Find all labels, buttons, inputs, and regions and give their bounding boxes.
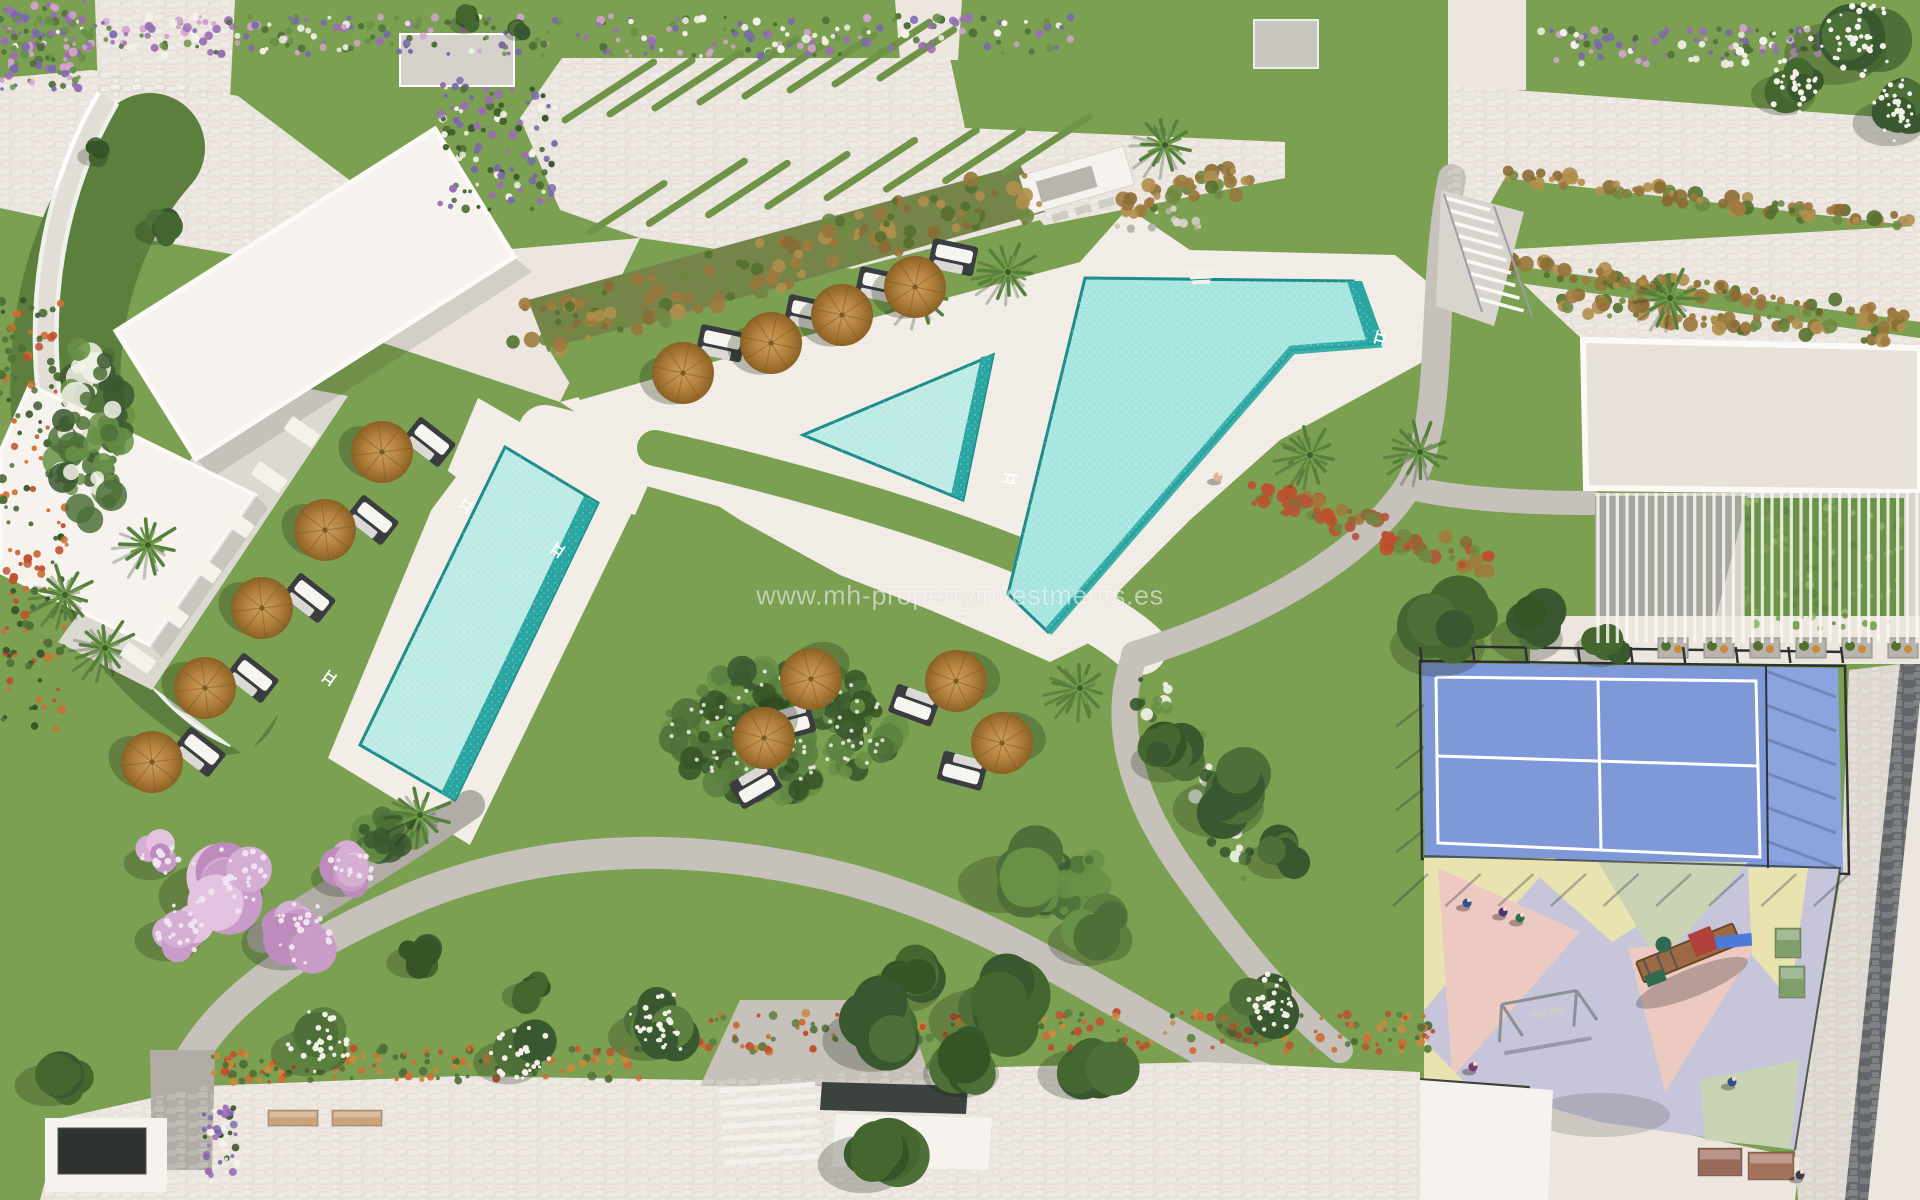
watermark: www.mh-propertyinvestments.es: [756, 581, 1164, 612]
padel-court-side-zone: [1766, 667, 1842, 872]
utility-box-topcenter: [1254, 20, 1318, 68]
bench-planter: [1779, 966, 1805, 998]
bench-planter: [1775, 928, 1801, 958]
bench-planter: [1748, 1152, 1794, 1180]
skylight-glass: [58, 1128, 146, 1174]
building-right-roof: [1583, 340, 1920, 492]
bench-planter: [332, 1110, 382, 1126]
aerial-resort-rendering: www.mh-propertyinvestments.es: [0, 0, 1920, 1200]
building-bottomright: [1420, 1080, 1553, 1200]
bench-planter: [1698, 1148, 1742, 1176]
bench-planter: [268, 1110, 318, 1126]
path-top-right-vertical: [1448, 0, 1526, 90]
padel-court: [1418, 646, 1849, 874]
